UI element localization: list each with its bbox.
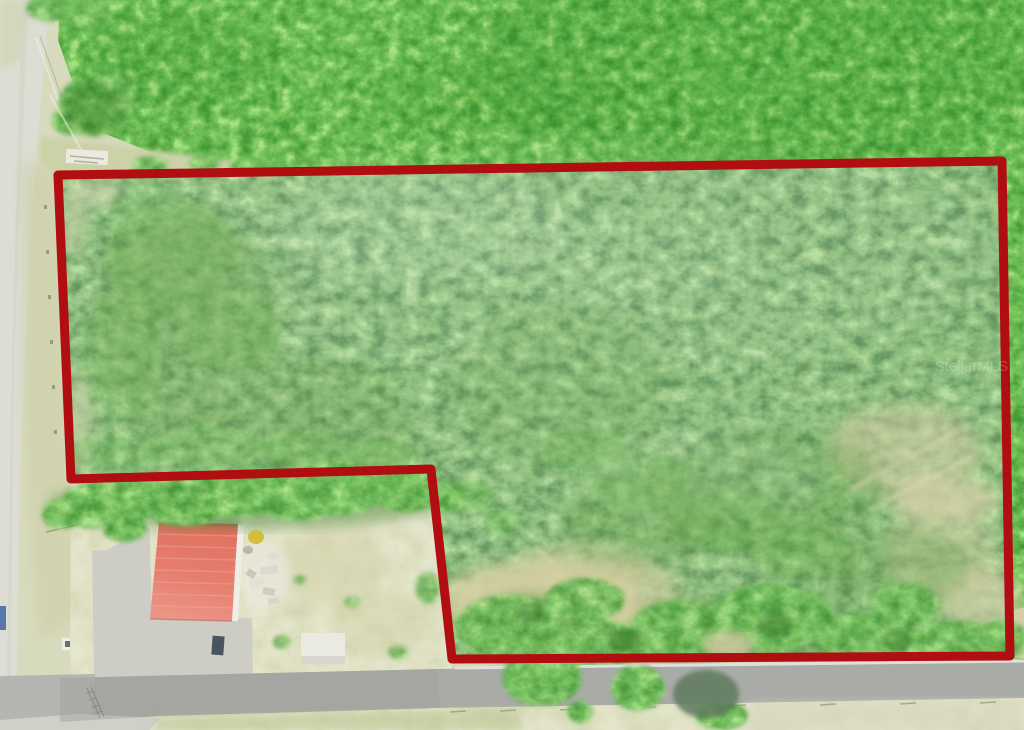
svg-text:StellarMLS: StellarMLS (935, 358, 1008, 375)
